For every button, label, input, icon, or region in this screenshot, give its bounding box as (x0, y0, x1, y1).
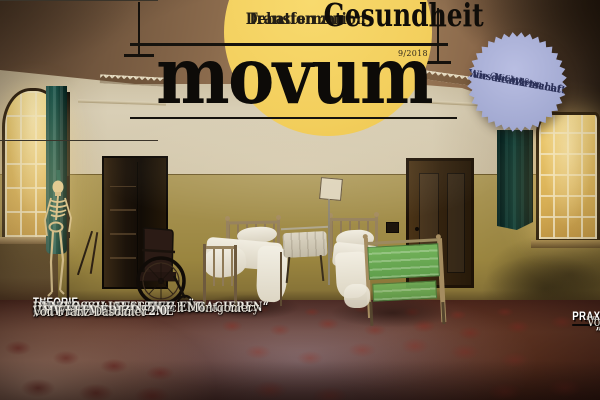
topic-rule-top (0, 140, 158, 141)
magazine-title: movum (35, 36, 552, 115)
bed-knob (276, 215, 281, 220)
iv-box (319, 177, 343, 201)
skeleton-illustration (38, 170, 82, 310)
under-bed-cloth (344, 284, 370, 308)
bed-footboard (204, 246, 236, 286)
door-panel (447, 173, 465, 273)
teal-curtain-right (497, 130, 533, 230)
green-footboard (364, 230, 449, 326)
wall-switch-box (386, 222, 399, 233)
iv-pole (328, 199, 330, 285)
topic-rule-bottom (0, 0, 158, 1)
footboard-panel (367, 243, 440, 280)
right-window-sill (531, 240, 600, 248)
bed-knob (374, 212, 379, 217)
bed-knob (225, 216, 230, 221)
magazine-cover: Debatten zur Transformation 9/2018 movum… (0, 0, 600, 400)
footboard-panel-lower (372, 280, 437, 301)
masthead-rule-bottom (130, 117, 457, 120)
article-byline: Von Franz Daschner (33, 306, 147, 320)
bed-leg (280, 252, 282, 306)
cover-topic: Gesundheit (324, 0, 484, 30)
bed-leg (369, 302, 373, 326)
